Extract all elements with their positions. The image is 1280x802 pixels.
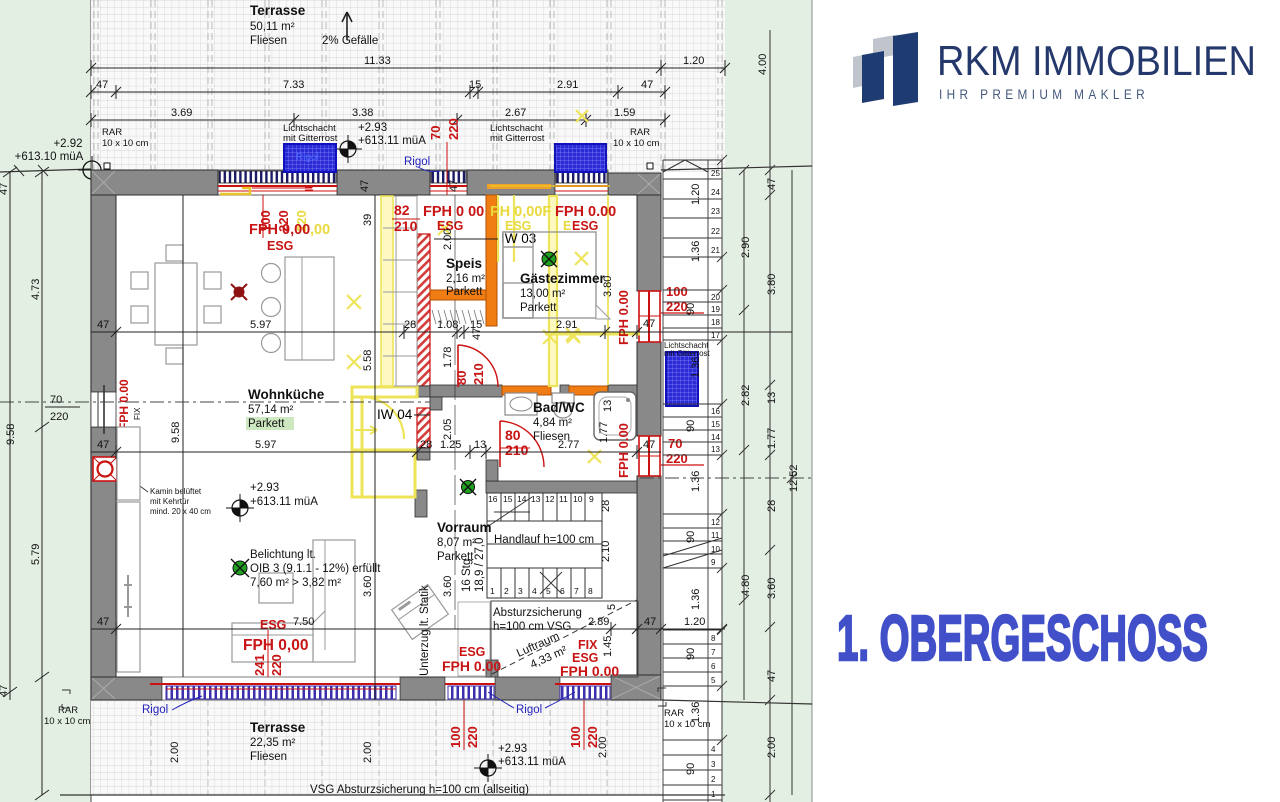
svg-text:Kamin belüftet: Kamin belüftet	[150, 487, 202, 496]
svg-text:+2.93: +2.93	[250, 482, 279, 494]
svg-text:7: 7	[711, 648, 716, 657]
svg-text:100: 100	[666, 284, 688, 299]
svg-text:3: 3	[518, 586, 523, 596]
svg-text:57,14 m²: 57,14 m²	[248, 404, 294, 416]
svg-text:7.33: 7.33	[283, 79, 304, 91]
svg-text:12.52: 12.52	[788, 464, 800, 492]
svg-text:2: 2	[504, 586, 509, 596]
svg-text:210: 210	[394, 218, 418, 234]
svg-text:90: 90	[685, 303, 697, 315]
svg-text:3.69: 3.69	[171, 107, 192, 119]
svg-text:210: 210	[471, 363, 486, 385]
svg-text:Terrasse: Terrasse	[250, 3, 306, 18]
svg-text:23: 23	[711, 207, 720, 216]
svg-text:70: 70	[668, 436, 682, 451]
svg-text:+613.11 müA: +613.11 müA	[250, 496, 318, 508]
svg-text:2.00: 2.00	[362, 742, 374, 763]
svg-text:47: 47	[96, 79, 108, 91]
svg-text:22: 22	[711, 227, 720, 236]
svg-text:h=100 cm VSG: h=100 cm VSG	[493, 621, 571, 633]
svg-text:5.79: 5.79	[30, 544, 42, 565]
svg-text:FPH 0.00: FPH 0.00	[616, 423, 631, 478]
svg-text:1.77: 1.77	[598, 422, 610, 443]
svg-text:15: 15	[469, 79, 481, 91]
svg-text:1: 1	[711, 790, 716, 799]
svg-text:70: 70	[428, 126, 443, 140]
svg-text:18: 18	[711, 318, 720, 327]
svg-text:16: 16	[488, 494, 498, 504]
svg-text:10: 10	[573, 494, 583, 504]
svg-text:1.36: 1.36	[690, 589, 702, 610]
svg-text:17: 17	[711, 331, 720, 340]
svg-text:FPH 0.00: FPH 0.00	[442, 658, 501, 674]
svg-text:3: 3	[711, 760, 716, 769]
svg-text:220: 220	[269, 654, 284, 676]
svg-text:mit Kehrtür: mit Kehrtür	[150, 497, 189, 506]
svg-text:2.00: 2.00	[169, 742, 181, 763]
svg-text:90: 90	[685, 420, 697, 432]
svg-text:13,00 m²: 13,00 m²	[520, 288, 566, 300]
svg-text:100: 100	[448, 726, 463, 748]
svg-text:13: 13	[531, 494, 541, 504]
svg-text:2.82: 2.82	[740, 385, 752, 406]
svg-text:1: 1	[490, 586, 495, 596]
svg-text:80: 80	[505, 427, 521, 443]
svg-text:14: 14	[711, 433, 720, 442]
svg-text:8: 8	[588, 586, 593, 596]
svg-text:16 Stg: 16 Stg	[461, 559, 473, 592]
svg-text:Parkett: Parkett	[248, 418, 285, 430]
svg-text:4.73: 4.73	[30, 279, 42, 300]
svg-text:Parkett: Parkett	[520, 302, 557, 314]
svg-text:28: 28	[420, 439, 432, 451]
svg-text:Vorraum: Vorraum	[437, 520, 492, 535]
svg-text:FPH 0.00: FPH 0.00	[560, 663, 619, 679]
svg-text:1.20: 1.20	[690, 184, 702, 205]
svg-text:4.00: 4.00	[757, 54, 769, 75]
svg-text:Rigol: Rigol	[404, 156, 430, 168]
svg-text:1.45: 1.45	[602, 636, 614, 657]
svg-text:13: 13	[711, 445, 720, 454]
svg-text:Parkett: Parkett	[437, 551, 474, 563]
svg-text:Bad/WC: Bad/WC	[533, 400, 585, 415]
svg-text:7: 7	[574, 586, 579, 596]
svg-text:FPH 0 00: FPH 0 00	[423, 204, 484, 220]
svg-text:1.36: 1.36	[690, 471, 702, 492]
svg-text:1.20: 1.20	[683, 55, 704, 67]
svg-text:10 x 10 cm: 10 x 10 cm	[664, 719, 711, 730]
svg-text:11: 11	[559, 494, 568, 504]
svg-text:13: 13	[474, 439, 486, 451]
svg-text:47: 47	[641, 79, 653, 91]
svg-text:+613.11 müA: +613.11 müA	[358, 135, 426, 147]
svg-text:47: 47	[644, 616, 656, 628]
svg-text:IW 03: IW 03	[501, 231, 536, 246]
svg-text:ESG: ESG	[267, 239, 293, 253]
svg-text:5.97: 5.97	[255, 439, 276, 451]
svg-text:+613.10 müA: +613.10 müA	[15, 151, 84, 163]
svg-text:2: 2	[711, 775, 716, 784]
svg-text:2,16 m²: 2,16 m²	[446, 273, 485, 285]
svg-text:9.58: 9.58	[170, 422, 182, 443]
svg-text:47: 47	[97, 319, 109, 331]
svg-text:Speis: Speis	[446, 256, 482, 271]
svg-text:FPH 0,00: FPH 0,00	[249, 222, 310, 238]
svg-text:1.77: 1.77	[766, 428, 778, 449]
svg-text:16: 16	[711, 407, 720, 416]
svg-text:25: 25	[711, 169, 720, 178]
svg-text:FIX: FIX	[578, 638, 598, 652]
svg-text:7.50: 7.50	[293, 616, 314, 628]
svg-text:FPH 0.00: FPH 0.00	[616, 290, 631, 345]
svg-text:24: 24	[711, 188, 720, 197]
svg-text:1.78: 1.78	[442, 347, 454, 368]
svg-text:28: 28	[404, 319, 416, 331]
svg-text:47: 47	[97, 439, 109, 451]
svg-text:5.58: 5.58	[362, 350, 374, 371]
svg-text:39: 39	[362, 214, 374, 226]
svg-text:,00: ,00	[310, 222, 330, 238]
svg-text:3.60: 3.60	[362, 576, 374, 597]
svg-text:Wohnküche: Wohnküche	[248, 387, 325, 402]
svg-text:4.80: 4.80	[740, 575, 752, 596]
svg-text:mind. 20 x 40 cm: mind. 20 x 40 cm	[150, 507, 211, 516]
svg-text:Terrasse: Terrasse	[250, 720, 306, 735]
svg-text:12: 12	[711, 518, 720, 527]
svg-text:7,60 m² > 3,82 m²: 7,60 m² > 3,82 m²	[250, 577, 341, 589]
svg-text:47: 47	[359, 180, 371, 192]
svg-text:10 x 10 cm: 10 x 10 cm	[102, 138, 149, 149]
svg-text:1.36: 1.36	[690, 241, 702, 262]
svg-text:9: 9	[589, 494, 594, 504]
svg-text:RAR: RAR	[58, 705, 78, 716]
svg-text:Rigol: Rigol	[516, 704, 542, 716]
svg-text:3.60: 3.60	[442, 576, 454, 597]
svg-text:Unterzug lt. Statik: Unterzug lt. Statik	[419, 585, 431, 676]
svg-text:15: 15	[711, 420, 720, 429]
svg-text:220: 220	[465, 726, 480, 748]
svg-text:FIX: FIX	[133, 407, 142, 420]
svg-text:E: E	[563, 219, 571, 233]
svg-text:2.10: 2.10	[600, 541, 612, 562]
svg-text:1.36: 1.36	[690, 702, 702, 723]
svg-text:5: 5	[606, 604, 618, 610]
svg-text:2.91: 2.91	[556, 319, 577, 331]
svg-text:VSG Absturzsicherung h=100 cm: VSG Absturzsicherung h=100 cm (allseitig…	[310, 784, 529, 796]
svg-text:mit Gitterrost: mit Gitterrost	[490, 133, 545, 144]
svg-text:22,35 m²: 22,35 m²	[250, 737, 296, 749]
svg-text:IHR PREMIUM MAKLER: IHR PREMIUM MAKLER	[939, 87, 1149, 102]
svg-text:20: 20	[711, 293, 720, 302]
svg-text:11.33: 11.33	[364, 55, 391, 67]
svg-text:3.60: 3.60	[766, 578, 778, 599]
svg-text:1.20: 1.20	[684, 616, 705, 628]
svg-text:+2.92: +2.92	[53, 138, 82, 150]
svg-text:ESG: ESG	[505, 219, 531, 233]
svg-text:50,11 m²: 50,11 m²	[250, 21, 295, 33]
svg-text:241: 241	[252, 654, 267, 676]
svg-text:47: 47	[766, 670, 778, 682]
svg-text:2% Gefälle: 2% Gefälle	[322, 35, 378, 47]
svg-text:19: 19	[711, 305, 720, 314]
svg-text:28: 28	[766, 500, 778, 512]
svg-text:FPH 0,00: FPH 0,00	[243, 637, 308, 654]
svg-text:1. OBERGESCHOSS: 1. OBERGESCHOSS	[837, 602, 1208, 674]
svg-text:47: 47	[643, 439, 655, 451]
svg-text:PH 0,00F: PH 0,00F	[490, 204, 551, 220]
svg-text:80: 80	[454, 371, 469, 385]
svg-text:4: 4	[532, 586, 537, 596]
svg-text:2.89: 2.89	[588, 616, 609, 628]
svg-text:FPH 0.00: FPH 0.00	[555, 204, 616, 220]
svg-text:220: 220	[446, 118, 461, 140]
svg-text:90: 90	[685, 763, 697, 775]
svg-text:1.36: 1.36	[690, 357, 702, 378]
svg-text:12: 12	[545, 494, 555, 504]
svg-text:2.67: 2.67	[505, 107, 526, 119]
svg-text:15: 15	[503, 494, 513, 504]
svg-text:90: 90	[685, 531, 697, 543]
svg-text:2.90: 2.90	[740, 237, 752, 258]
svg-text:+613.11 müA: +613.11 müA	[498, 756, 566, 768]
svg-text:2.05: 2.05	[442, 419, 454, 440]
svg-text:5.97: 5.97	[250, 319, 271, 331]
svg-text:210: 210	[505, 442, 529, 458]
svg-text:220: 220	[50, 411, 68, 423]
svg-text:47: 47	[448, 180, 460, 192]
svg-text:8: 8	[711, 634, 716, 643]
svg-text:9.58: 9.58	[5, 424, 17, 445]
svg-text:RAR: RAR	[664, 708, 684, 719]
svg-text:+2.93: +2.93	[358, 122, 387, 134]
svg-text:Fliesen: Fliesen	[533, 431, 570, 443]
svg-text:90: 90	[685, 648, 697, 660]
svg-text:RAR: RAR	[102, 127, 122, 138]
svg-text:47: 47	[766, 178, 778, 190]
svg-text:13: 13	[602, 400, 614, 412]
svg-text:6: 6	[711, 662, 716, 671]
svg-text:Fliesen: Fliesen	[250, 751, 287, 763]
svg-text:RAR: RAR	[630, 127, 650, 138]
svg-text:Parkett: Parkett	[446, 286, 483, 298]
svg-text:2.91: 2.91	[557, 79, 578, 91]
svg-text:4: 4	[711, 745, 716, 754]
svg-text:4,84 m²: 4,84 m²	[533, 417, 572, 429]
svg-text:mit Gitterrost: mit Gitterrost	[664, 349, 711, 358]
svg-text:82: 82	[394, 202, 410, 218]
svg-text:ESG: ESG	[572, 219, 598, 233]
svg-text:2.00: 2.00	[766, 737, 778, 758]
svg-text:9: 9	[711, 558, 716, 567]
svg-text:OIB 3 (9.1.1 - 12%) erfüllt: OIB 3 (9.1.1 - 12%) erfüllt	[250, 563, 381, 575]
svg-text:13: 13	[766, 392, 778, 404]
svg-text:220: 220	[666, 451, 688, 466]
svg-text:8,07 m²: 8,07 m²	[437, 537, 476, 549]
svg-text:1.59: 1.59	[614, 107, 635, 119]
svg-text:Absturzsicherung: Absturzsicherung	[493, 607, 582, 619]
svg-text:mit Gitterrost: mit Gitterrost	[283, 133, 338, 144]
svg-text:+2.93: +2.93	[498, 743, 527, 755]
svg-text:ESG: ESG	[260, 618, 286, 632]
svg-text:5: 5	[711, 676, 716, 685]
svg-text:Fliesen: Fliesen	[250, 35, 287, 47]
svg-text:100: 100	[568, 726, 583, 748]
svg-text:14: 14	[517, 494, 527, 504]
svg-text:70: 70	[50, 394, 62, 406]
svg-text:Rigol: Rigol	[296, 152, 319, 163]
svg-text:3.38: 3.38	[352, 107, 373, 119]
svg-text:2.00: 2.00	[597, 737, 609, 758]
svg-text:47: 47	[97, 616, 109, 628]
svg-text:2.00: 2.00	[442, 229, 454, 250]
svg-text:Belichtung lt.: Belichtung lt.	[250, 549, 316, 561]
svg-text:FPH 0.00: FPH 0.00	[117, 379, 131, 430]
svg-text:ESG: ESG	[459, 645, 485, 659]
svg-text:Gästezimmer: Gästezimmer	[520, 271, 606, 286]
svg-text:3.80: 3.80	[766, 274, 778, 295]
svg-text:6: 6	[560, 586, 565, 596]
svg-text:Rigol: Rigol	[142, 704, 168, 716]
svg-text:Handlauf h=100 cm: Handlauf h=100 cm	[494, 534, 594, 546]
svg-text:IW 04: IW 04	[377, 407, 413, 422]
svg-text:47: 47	[643, 318, 655, 330]
svg-text:47: 47	[471, 328, 483, 340]
svg-text:47: 47	[0, 685, 10, 697]
svg-text:10 x 10 cm: 10 x 10 cm	[44, 716, 91, 727]
svg-text:47: 47	[0, 183, 10, 195]
svg-text:10 x 10 cm: 10 x 10 cm	[613, 138, 660, 149]
svg-text:RKM IMMOBILIEN: RKM IMMOBILIEN	[937, 37, 1256, 84]
svg-text:28: 28	[600, 500, 612, 512]
svg-text:21: 21	[711, 246, 720, 255]
